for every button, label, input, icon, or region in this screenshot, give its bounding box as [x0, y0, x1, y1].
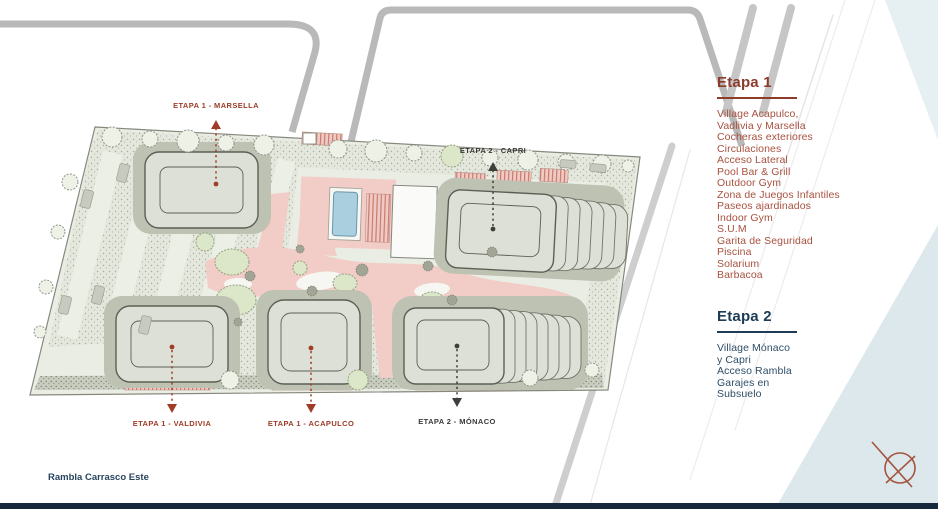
legend-etapa-2: Etapa 2 Village Mónacoy CapriAcceso Ramb… [717, 308, 887, 401]
legend-etapa-2-items: Village Mónacoy CapriAcceso RamblaGaraje… [717, 343, 887, 401]
legend-item: S.U.M [717, 224, 887, 236]
building-valdivia [104, 296, 240, 388]
building-capri [433, 177, 630, 283]
legend-item: Paseos ajardinados [717, 201, 887, 213]
sum-building [391, 185, 437, 258]
legend-etapa-2-title: Etapa 2 [717, 308, 887, 325]
legend-etapa-2-rule [717, 331, 797, 333]
label-etapa2-capri: ETAPA 2 - CAPRI [460, 146, 526, 155]
label-etapa1-acapulco: ETAPA 1 - ACAPULCO [268, 419, 354, 428]
legend-etapa-1-rule [717, 97, 797, 99]
pool [332, 192, 358, 237]
site-plan-canvas: ETAPA 1 - MARSELLA ETAPA 2 - CAPRI ETAPA… [0, 0, 938, 509]
solarium-deck [365, 194, 391, 243]
legend-item: Subsuelo [717, 389, 887, 401]
building-monaco [392, 296, 588, 390]
legend-item: Village Mónaco [717, 343, 887, 355]
legend-item: Village Acapulco, [717, 109, 887, 121]
legend-etapa-1-title: Etapa 1 [717, 74, 887, 91]
building-marsella [133, 142, 271, 234]
legend-item: Cocheras exteriores [717, 132, 887, 144]
legend-item: Piscina [717, 247, 887, 259]
garita-seguridad [303, 133, 316, 144]
legend-etapa-1-items: Village Acapulco,Vadlivia y MarsellaCoch… [717, 109, 887, 282]
label-etapa1-marsella: ETAPA 1 - MARSELLA [173, 101, 259, 110]
bottom-accent-bar [0, 503, 938, 509]
legend-item: Acceso Lateral [717, 155, 887, 167]
legend-item: Acceso Rambla [717, 366, 887, 378]
legend-etapa-1: Etapa 1 Village Acapulco,Vadlivia y Mars… [717, 74, 887, 282]
legend-item: Outdoor Gym [717, 178, 887, 190]
adjacent-block-middle [350, 10, 742, 146]
label-etapa2-monaco: ETAPA 2 - MÓNACO [418, 417, 496, 426]
legend-item: Barbacoa [717, 270, 887, 282]
label-etapa1-valdivia: ETAPA 1 - VALDIVIA [133, 419, 212, 428]
street-name-label: Rambla Carrasco Este [48, 472, 149, 483]
adjacent-block-left [0, 24, 316, 132]
